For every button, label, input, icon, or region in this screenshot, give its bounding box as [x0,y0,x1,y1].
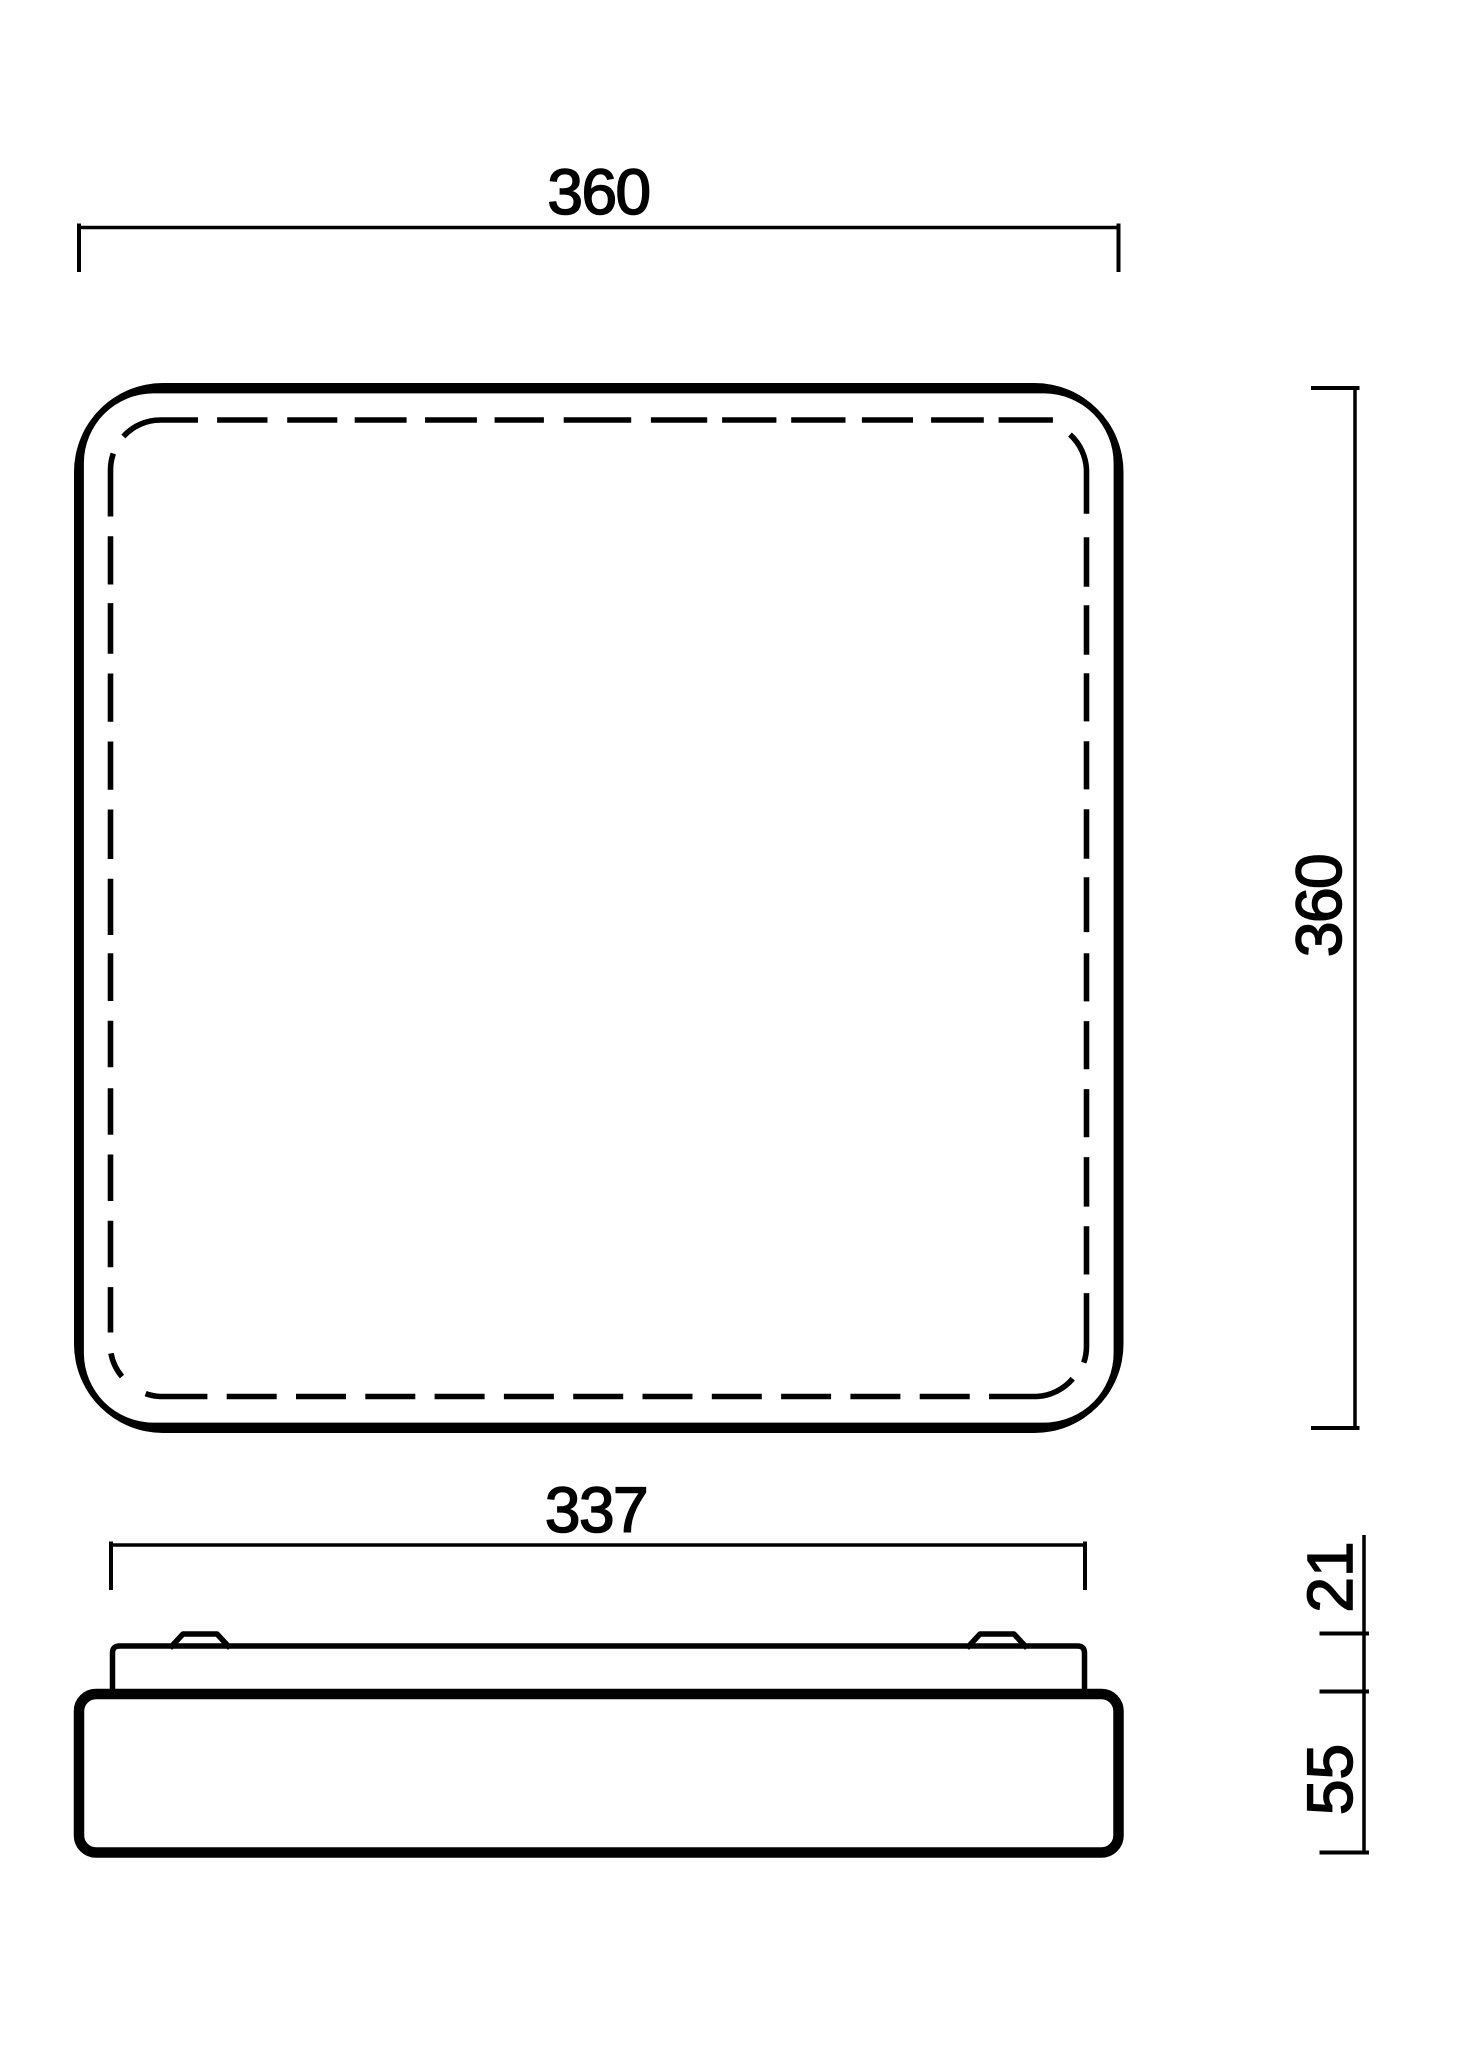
svg-text:55: 55 [1294,1744,1366,1815]
svg-text:360: 360 [1283,855,1355,957]
svg-text:337: 337 [545,1474,647,1546]
svg-text:360: 360 [547,156,649,228]
svg-text:21: 21 [1294,1541,1366,1612]
